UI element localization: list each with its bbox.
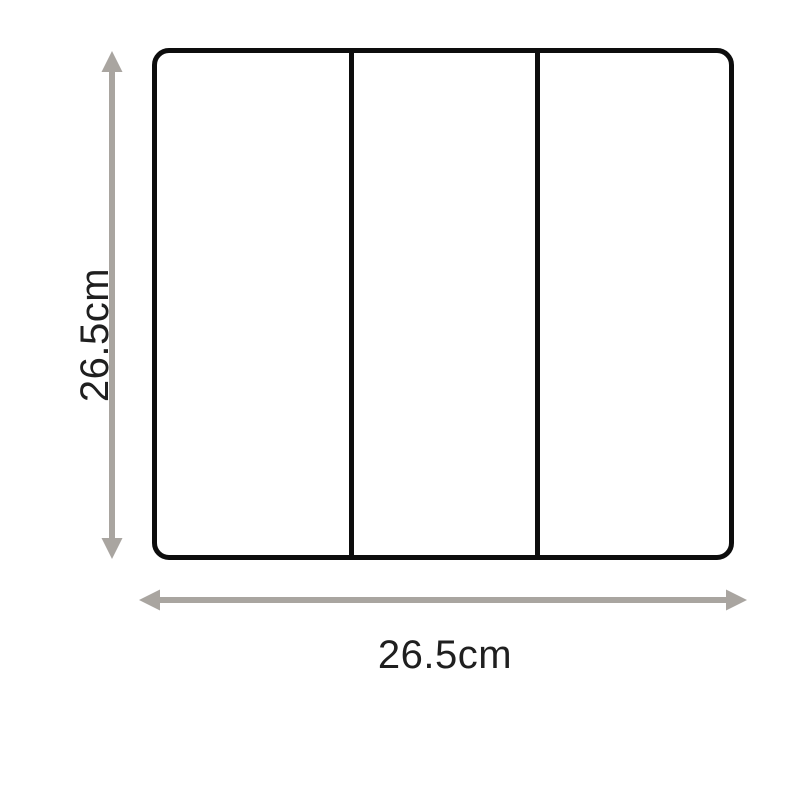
width-dimension-label: 26.5cm [378,635,512,675]
width-dimension-arrow-icon [139,585,747,615]
panel-divider-right [535,50,540,558]
panel-outline [152,48,734,560]
dimension-diagram: 26.5cm 26.5cm [0,0,800,800]
height-dimension-label: 26.5cm [75,268,115,402]
panel-divider-left [349,50,354,558]
